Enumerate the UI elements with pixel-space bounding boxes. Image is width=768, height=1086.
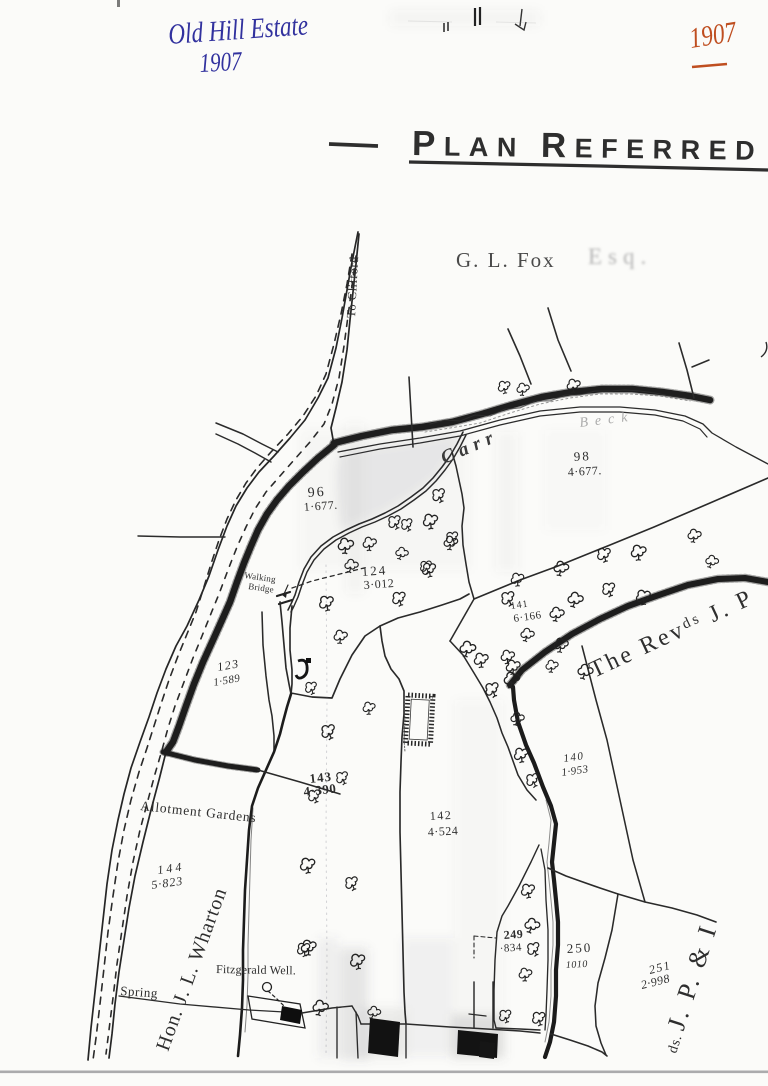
svg-text:1·953: 1·953 [561, 763, 590, 779]
svg-text:1907: 1907 [199, 46, 244, 78]
svg-text:The Revds J. P: The Revds J. P [586, 585, 758, 684]
svg-text:250: 250 [566, 940, 592, 956]
svg-text:249: 249 [503, 927, 523, 942]
svg-text:6·166: 6·166 [513, 609, 543, 625]
svg-text:PLAN REFERRED: PLAN REFERRED [412, 124, 764, 168]
svg-text:142: 142 [429, 808, 452, 823]
svg-text:Allotment Gardens: Allotment Gardens [140, 798, 258, 825]
svg-text:Spring: Spring [120, 983, 159, 1001]
svg-text:1·677.: 1·677. [303, 498, 338, 514]
svg-text:Old Hill Estate: Old Hill Estate [167, 9, 309, 51]
svg-text:1907: 1907 [687, 16, 740, 55]
svg-text:3·012: 3·012 [363, 576, 394, 592]
svg-text:ds. J. P. & I: ds. J. P. & I [654, 920, 723, 1056]
svg-text:2·998: 2·998 [639, 971, 671, 992]
svg-text:G. L. Fox: G. L. Fox [456, 248, 556, 272]
svg-text:140: 140 [563, 750, 585, 765]
svg-text:Fitzgerald Well.: Fitzgerald Well. [216, 962, 296, 977]
svg-text:4·677.: 4·677. [567, 463, 602, 479]
svg-text:Bridge: Bridge [248, 581, 275, 594]
svg-text:·834: ·834 [499, 941, 522, 955]
svg-text:4·524: 4·524 [427, 823, 458, 839]
svg-text:141: 141 [510, 599, 529, 612]
svg-text:1010: 1010 [566, 959, 589, 971]
svg-text:Esq.: Esq. [588, 244, 652, 269]
svg-text:To Clifford: To Clifford [344, 256, 361, 319]
svg-text:123: 123 [216, 656, 241, 674]
svg-text:5·823: 5·823 [150, 874, 184, 892]
svg-text:98: 98 [573, 448, 591, 464]
svg-text:4·390: 4·390 [303, 781, 337, 799]
svg-text:1·589: 1·589 [212, 672, 241, 689]
